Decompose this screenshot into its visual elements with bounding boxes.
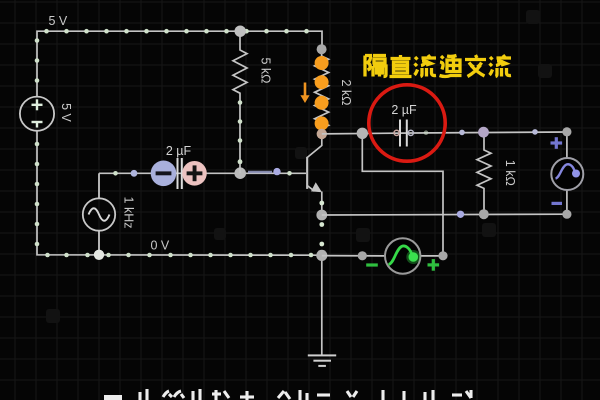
svg-text:2 kΩ: 2 kΩ [339, 79, 353, 105]
svg-text:0 V: 0 V [151, 239, 170, 253]
svg-text:1 kHz: 1 kHz [122, 197, 136, 229]
svg-text:2 µF: 2 µF [166, 144, 192, 158]
svg-text:5 V: 5 V [59, 103, 73, 122]
svg-text:5 kΩ: 5 kΩ [259, 57, 273, 83]
svg-text:2 µF: 2 µF [391, 103, 417, 117]
svg-text:1 kΩ: 1 kΩ [503, 160, 517, 186]
svg-text:5 V: 5 V [49, 14, 68, 28]
